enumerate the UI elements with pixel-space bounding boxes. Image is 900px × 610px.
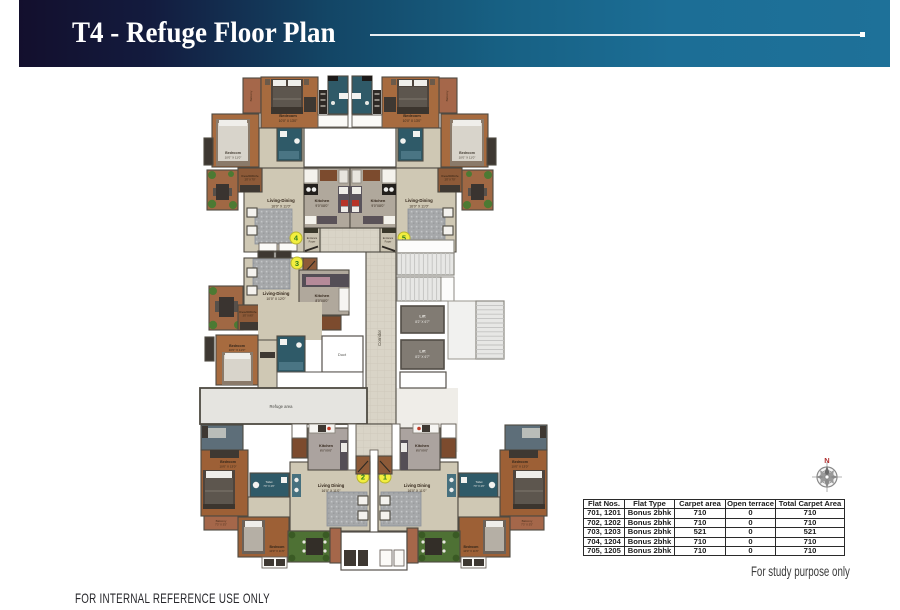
svg-text:10'0" X 13'0": 10'0" X 13'0" bbox=[279, 119, 298, 123]
svg-text:8'0"X9'0": 8'0"X9'0" bbox=[416, 449, 428, 453]
svg-text:7'3" X 3'5": 7'3" X 3'5" bbox=[215, 523, 227, 527]
svg-text:Lift: Lift bbox=[419, 314, 426, 319]
svg-text:Balcony: Balcony bbox=[249, 90, 253, 101]
svg-text:10'0" X 11'6": 10'0" X 11'6" bbox=[269, 549, 285, 553]
svg-text:Corridor: Corridor bbox=[377, 330, 382, 346]
svg-text:Duct: Duct bbox=[338, 352, 347, 357]
svg-text:10'0" X 12'0": 10'0" X 12'0" bbox=[266, 297, 286, 301]
svg-text:9'0"X8'0": 9'0"X8'0" bbox=[315, 204, 329, 208]
svg-text:10'0" X 13'0": 10'0" X 13'0" bbox=[512, 464, 529, 468]
svg-text:Kitchen: Kitchen bbox=[319, 444, 334, 448]
svg-text:Entrance: Entrance bbox=[383, 236, 394, 240]
svg-text:Kitchen: Kitchen bbox=[371, 198, 386, 203]
svg-text:10'0" X 13'0": 10'0" X 13'0" bbox=[403, 119, 422, 123]
svg-text:10'0" X 11'0": 10'0" X 11'0" bbox=[229, 348, 246, 352]
svg-text:10'0" X 11'0": 10'0" X 11'0" bbox=[225, 155, 242, 159]
svg-text:Balcony: Balcony bbox=[445, 90, 449, 101]
svg-text:Kitchen: Kitchen bbox=[315, 198, 330, 203]
svg-text:10'0" X 11'6": 10'0" X 11'6" bbox=[463, 549, 479, 553]
svg-text:16'0" X 11'0": 16'0" X 11'0" bbox=[271, 205, 291, 209]
svg-text:Balcony: Balcony bbox=[522, 519, 533, 523]
svg-text:2'0" X 7'0": 2'0" X 7'0" bbox=[245, 178, 256, 181]
svg-text:Living Dining: Living Dining bbox=[404, 483, 431, 488]
svg-text:Living-Dining: Living-Dining bbox=[263, 291, 290, 296]
svg-text:Bedroom: Bedroom bbox=[459, 151, 475, 155]
svg-text:9'0"X8'0": 9'0"X8'0" bbox=[371, 204, 385, 208]
svg-text:7'3" X 3'5": 7'3" X 3'5" bbox=[521, 523, 533, 527]
svg-text:Bedroom: Bedroom bbox=[220, 460, 236, 464]
svg-text:Living Dining: Living Dining bbox=[318, 483, 345, 488]
svg-text:8'0"X9'0": 8'0"X9'0" bbox=[320, 449, 332, 453]
svg-text:10'0" X 11'0": 10'0" X 11'0" bbox=[459, 155, 476, 159]
svg-text:Living-Dining: Living-Dining bbox=[267, 198, 295, 203]
svg-text:7'0" X 4'0": 7'0" X 4'0" bbox=[473, 485, 484, 488]
svg-text:Refuge area: Refuge area bbox=[269, 404, 293, 409]
svg-text:10'0" X 13'0": 10'0" X 13'0" bbox=[220, 464, 237, 468]
svg-text:7'0" X 4'0": 7'0" X 4'0" bbox=[263, 485, 274, 488]
svg-text:Living-Dining: Living-Dining bbox=[405, 198, 433, 203]
svg-text:Kitchen: Kitchen bbox=[415, 444, 430, 448]
svg-text:8'2" X 6'7": 8'2" X 6'7" bbox=[415, 320, 429, 324]
svg-text:Lift: Lift bbox=[419, 349, 426, 354]
svg-text:Bedroom: Bedroom bbox=[512, 460, 528, 464]
svg-text:Bedroom: Bedroom bbox=[403, 113, 421, 118]
svg-text:Kitchen: Kitchen bbox=[315, 293, 330, 298]
svg-text:16'0" X 11'0": 16'0" X 11'0" bbox=[409, 205, 429, 209]
svg-text:8'2" X 6'7": 8'2" X 6'7" bbox=[415, 355, 429, 359]
svg-text:Balcony: Balcony bbox=[216, 519, 227, 523]
svg-text:16'0" X 11'0": 16'0" X 11'0" bbox=[322, 489, 342, 493]
svg-text:3'0" X 8'0": 3'0" X 8'0" bbox=[243, 314, 254, 317]
svg-text:Bedroom: Bedroom bbox=[225, 151, 241, 155]
svg-text:Foyer: Foyer bbox=[309, 239, 316, 243]
svg-text:3: 3 bbox=[295, 259, 299, 268]
svg-text:2'0" X 7'0": 2'0" X 7'0" bbox=[445, 178, 456, 181]
svg-text:Foyer: Foyer bbox=[385, 239, 392, 243]
svg-text:Toilet: Toilet bbox=[475, 480, 482, 484]
svg-text:Entrance: Entrance bbox=[307, 236, 318, 240]
svg-text:16'0" X 11'0": 16'0" X 11'0" bbox=[408, 489, 428, 493]
svg-text:Bedroom: Bedroom bbox=[279, 113, 297, 118]
svg-text:Toilet: Toilet bbox=[265, 480, 272, 484]
